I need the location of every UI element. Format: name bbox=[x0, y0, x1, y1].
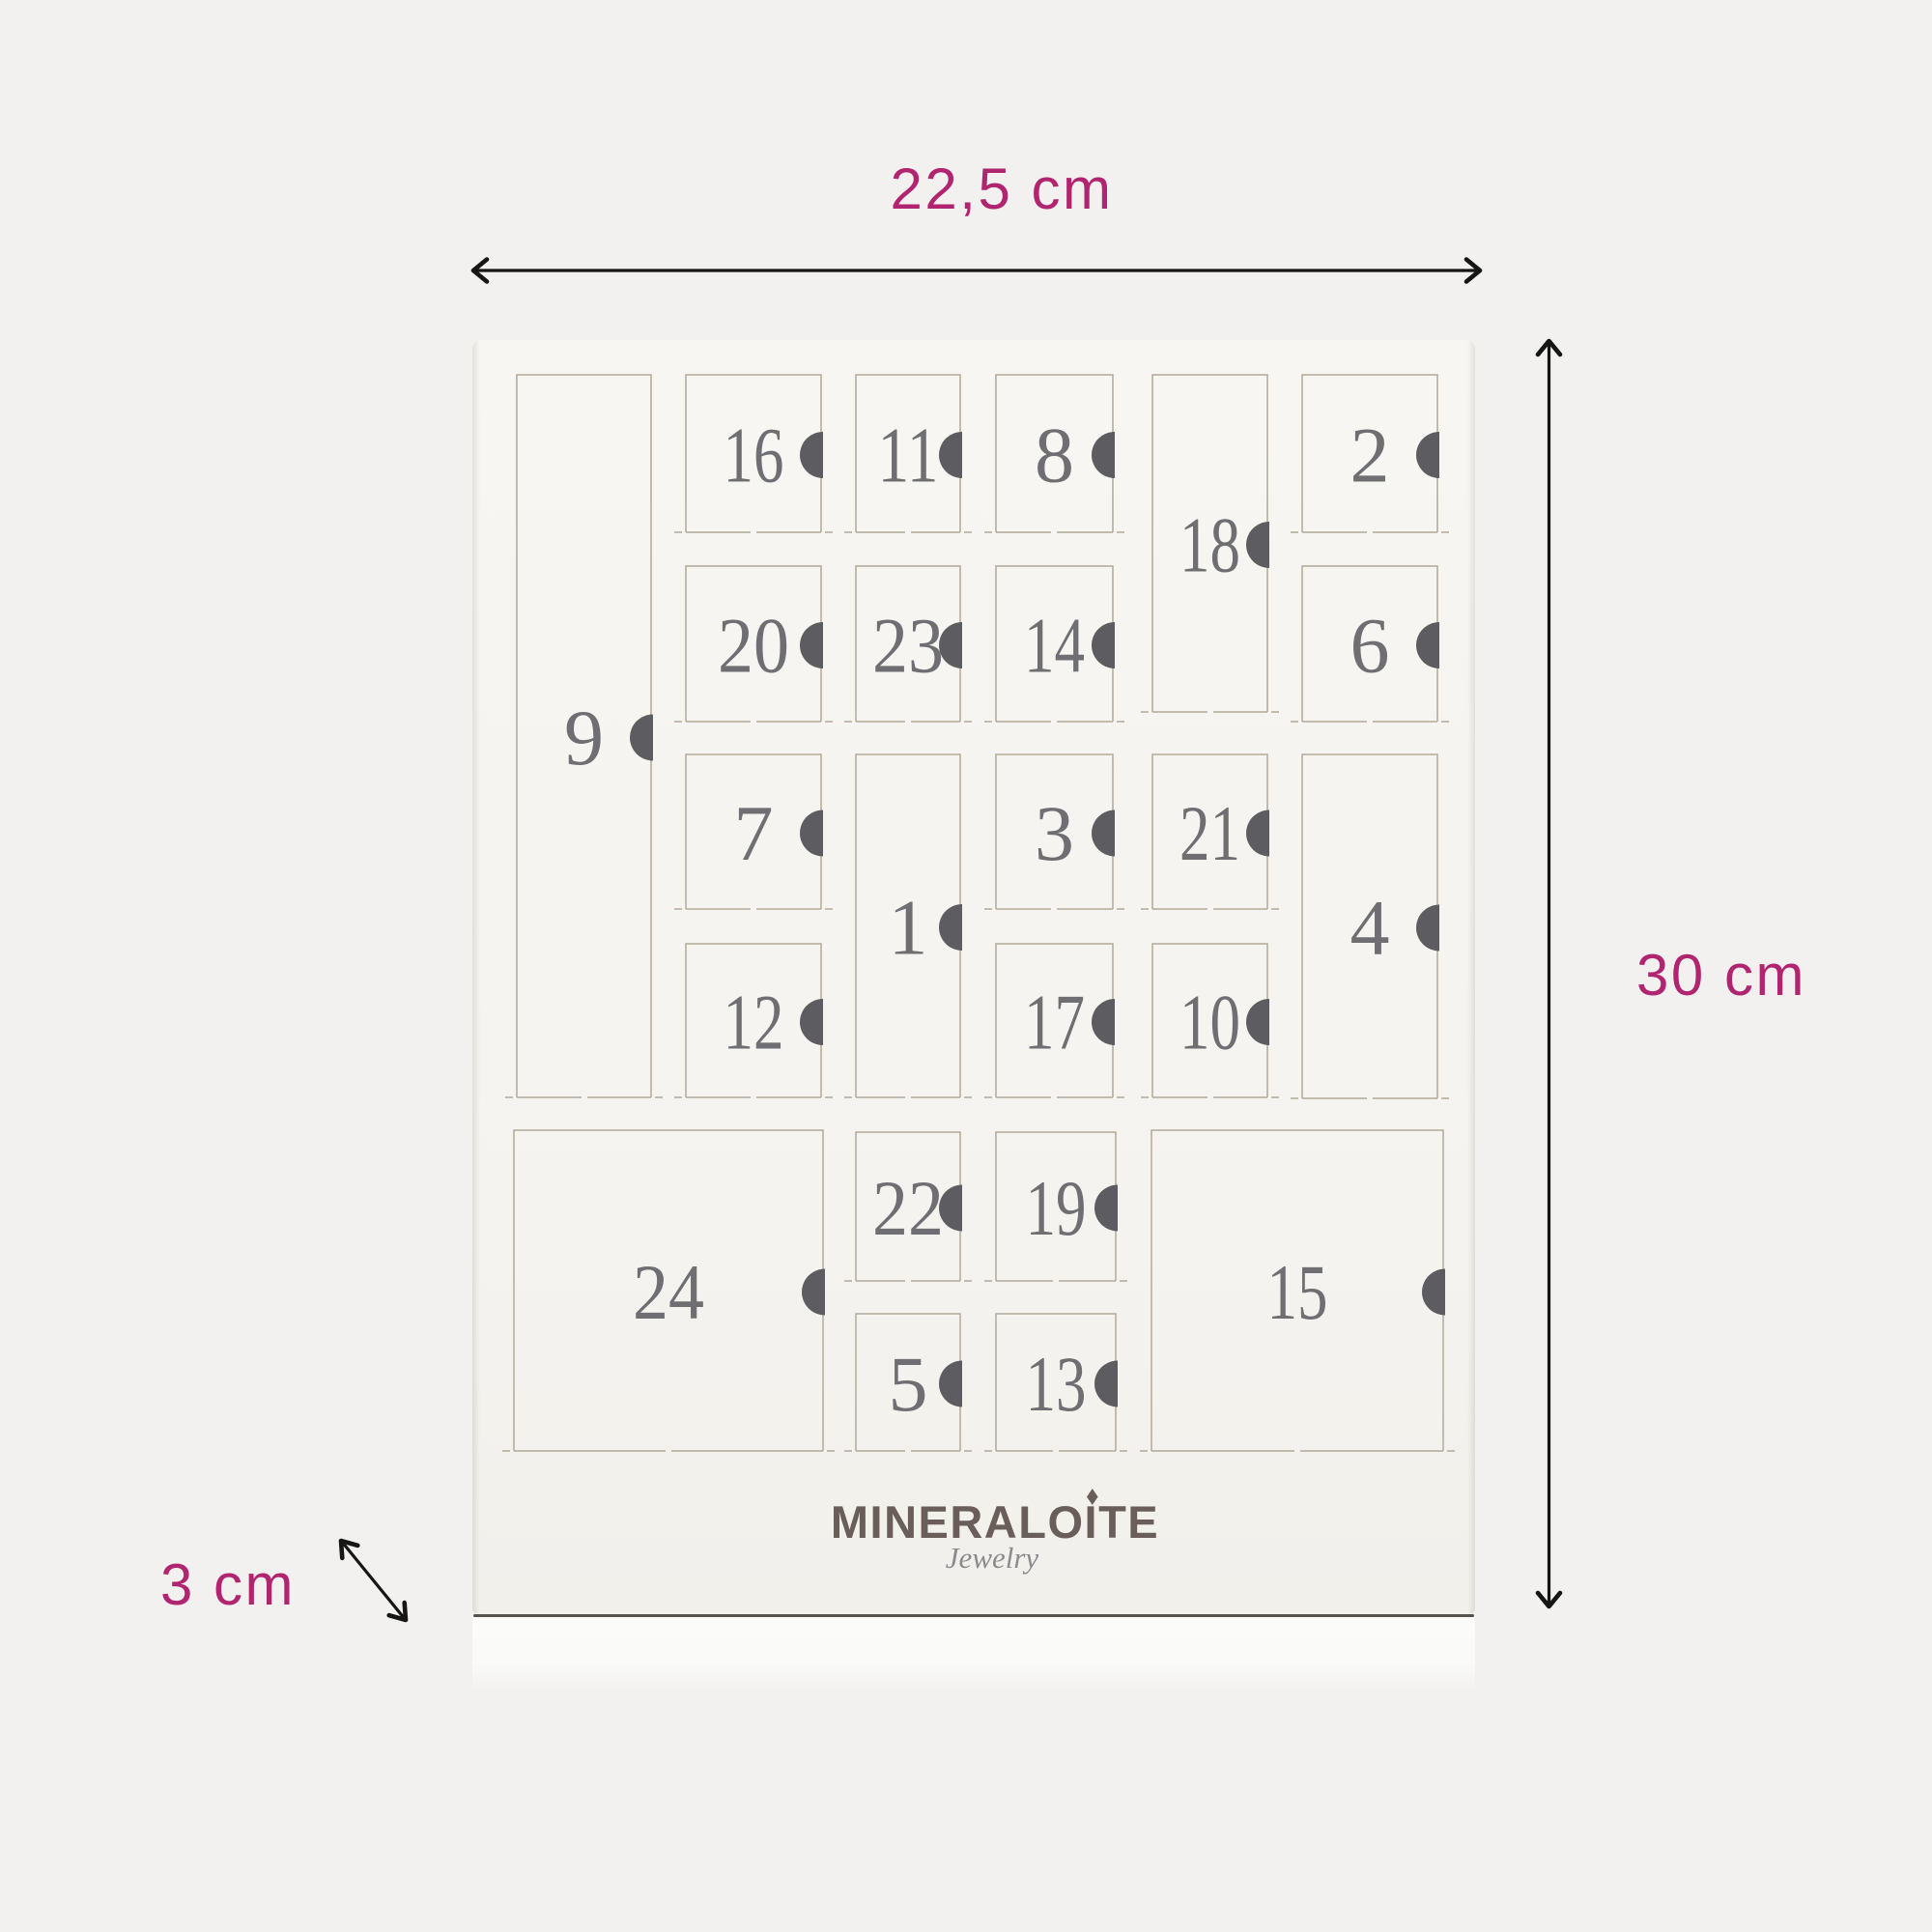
svg-text:18: 18 bbox=[1179, 501, 1240, 589]
svg-text:30 cm: 30 cm bbox=[1636, 943, 1806, 1008]
svg-text:13: 13 bbox=[1026, 1340, 1087, 1428]
svg-text:15: 15 bbox=[1267, 1248, 1328, 1336]
svg-text:24: 24 bbox=[633, 1248, 704, 1336]
svg-text:21: 21 bbox=[1179, 789, 1240, 877]
svg-text:1: 1 bbox=[889, 884, 928, 972]
svg-text:5: 5 bbox=[889, 1340, 928, 1428]
svg-text:14: 14 bbox=[1024, 602, 1085, 690]
svg-text:9: 9 bbox=[564, 694, 604, 781]
svg-text:23: 23 bbox=[872, 602, 944, 690]
svg-text:Jewelry: Jewelry bbox=[946, 1541, 1039, 1575]
svg-text:8: 8 bbox=[1035, 412, 1074, 499]
svg-text:11: 11 bbox=[878, 412, 939, 499]
svg-text:22: 22 bbox=[872, 1164, 944, 1252]
svg-text:12: 12 bbox=[724, 979, 784, 1066]
svg-text:17: 17 bbox=[1024, 979, 1085, 1066]
svg-text:20: 20 bbox=[718, 602, 789, 690]
svg-text:16: 16 bbox=[724, 412, 784, 499]
svg-text:19: 19 bbox=[1026, 1164, 1087, 1252]
svg-text:2: 2 bbox=[1350, 412, 1390, 499]
svg-text:22,5 cm: 22,5 cm bbox=[891, 156, 1114, 221]
svg-text:6: 6 bbox=[1350, 602, 1390, 690]
svg-text:3: 3 bbox=[1035, 789, 1074, 877]
svg-text:10: 10 bbox=[1179, 979, 1240, 1066]
svg-text:4: 4 bbox=[1350, 884, 1390, 972]
svg-text:7: 7 bbox=[734, 789, 774, 877]
svg-text:3 cm: 3 cm bbox=[160, 1552, 296, 1617]
